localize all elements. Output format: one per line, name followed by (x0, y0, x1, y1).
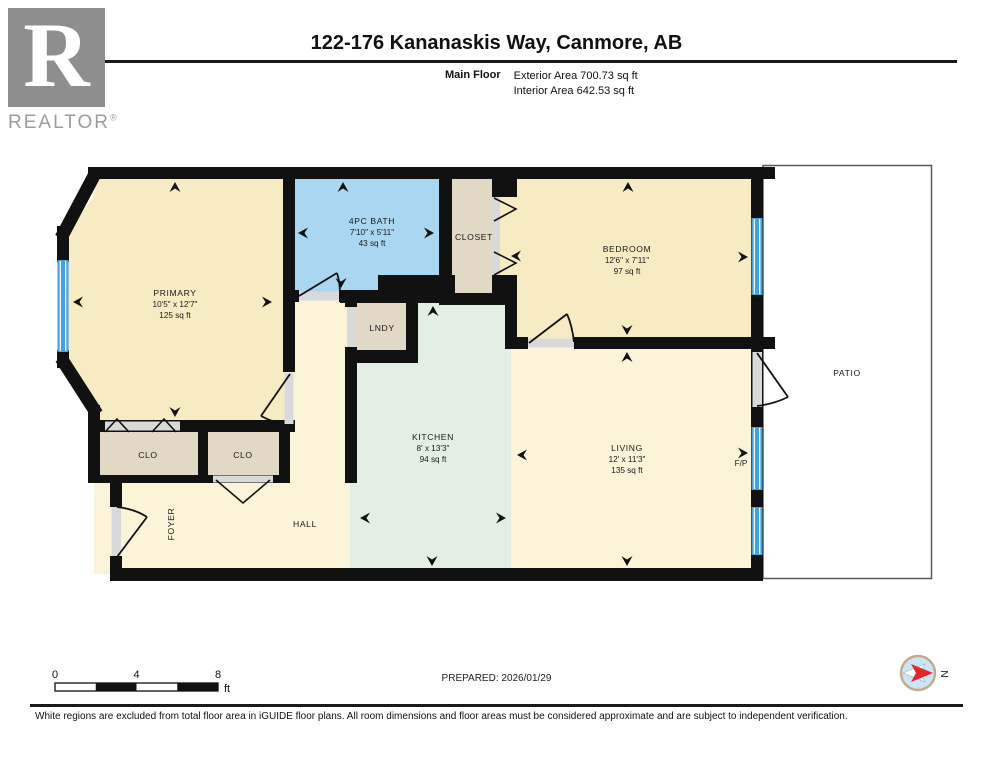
clo-right-track (213, 476, 273, 483)
page-title: 122-176 Kananaskis Way, Canmore, AB (0, 32, 993, 55)
primary-name: PRIMARY (153, 288, 196, 298)
label-patio: PATIO (833, 368, 861, 378)
area-summary: Exterior Area 700.73 sq ft Interior Area… (514, 69, 638, 99)
living-window-lower (752, 507, 763, 555)
realtor-logo-wordmark: REALTOR® (8, 112, 119, 134)
closet-track (493, 197, 501, 275)
interior-area: Interior Area 642.53 sq ft (514, 84, 638, 99)
living-window-upper (752, 427, 763, 490)
floorplan-page: R REALTOR® 122-176 Kananaskis Way, Canmo… (0, 0, 993, 768)
scale-unit: ft (224, 683, 230, 695)
bath-area: 43 sq ft (359, 239, 387, 248)
realtor-logo: R REALTOR® (8, 8, 119, 134)
label-fireplace: F/P (735, 459, 748, 468)
realtor-wordmark-text: REALTOR (8, 112, 110, 133)
patio-door-slab (753, 352, 763, 407)
realtor-logo-block: R (8, 8, 105, 107)
label-closet: CLOSET (455, 232, 493, 242)
label-clo-left: CLO (138, 450, 157, 460)
label-lndy: LNDY (369, 323, 394, 333)
header-divider (33, 60, 957, 63)
primary-dims: 10'5" x 12'7" (153, 300, 198, 309)
living-dims: 12' x 11'3" (609, 455, 646, 464)
bedroom-area: 97 sq ft (614, 267, 642, 276)
clo-left-track (105, 422, 180, 431)
registered-mark: ® (110, 113, 119, 123)
footer-divider (30, 704, 963, 707)
kitchen-dims: 8' x 13'3" (417, 444, 450, 453)
floor-summary: Main Floor Exterior Area 700.73 sq ft In… (445, 69, 638, 99)
label-hall: HALL (293, 519, 317, 529)
label-foyer: FOYER (166, 508, 176, 541)
prepared-date: PREPARED: 2026/01/29 (0, 673, 993, 684)
disclaimer-text: White regions are excluded from total fl… (35, 711, 958, 722)
bedroom-window (752, 218, 763, 295)
bath-dims: 7'10" x 5'11" (350, 228, 394, 237)
bedroom-dims: 12'6" x 7'11" (605, 256, 649, 265)
entry-door-slab (112, 507, 122, 556)
primary-area: 125 sq ft (159, 311, 191, 320)
bay-window (58, 260, 69, 352)
floor-label: Main Floor (445, 69, 501, 99)
exterior-area: Exterior Area 700.73 sq ft (514, 69, 638, 84)
kitchen-name: KITCHEN (412, 432, 454, 442)
living-name: LIVING (611, 443, 643, 453)
living-area: 135 sq ft (611, 466, 643, 475)
kitchen-area: 94 sq ft (420, 455, 448, 464)
lndy-track (347, 307, 356, 347)
bedroom-name: BEDROOM (603, 244, 652, 254)
bath-name: 4PC BATH (349, 216, 395, 226)
floorplan-drawing: PRIMARY 10'5" x 12'7" 125 sq ft 4PC BATH… (0, 0, 993, 768)
label-clo-right: CLO (233, 450, 252, 460)
label-living: LIVING 12' x 11'3" 135 sq ft (609, 443, 646, 475)
bedroom-door-slab (528, 339, 574, 348)
